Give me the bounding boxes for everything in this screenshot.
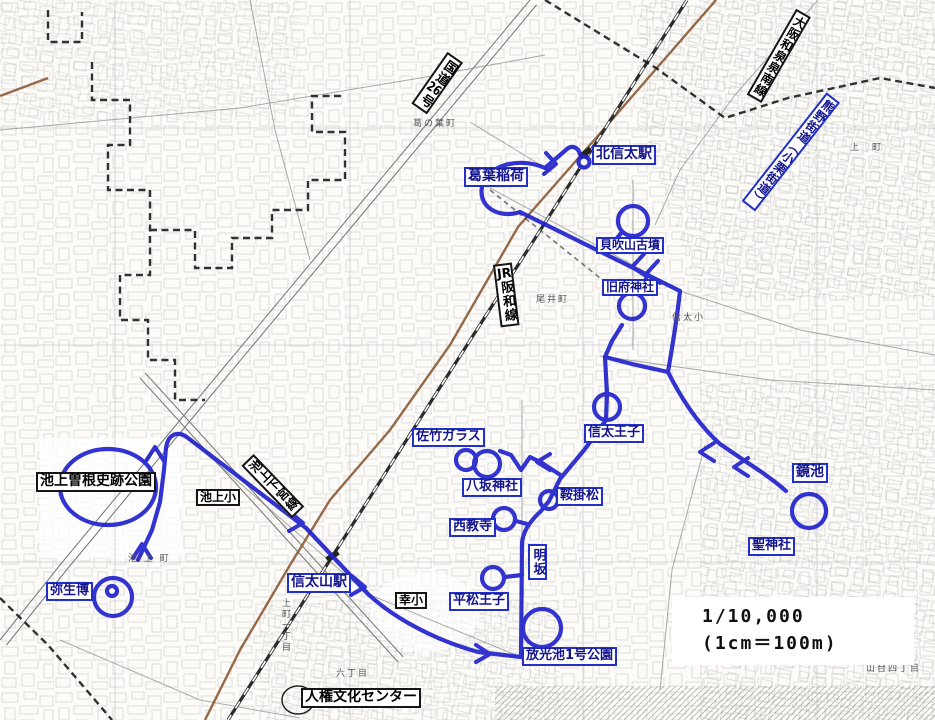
walking-map: 北信太駅葛葉稲荷貝吹山古墳旧府神社信太王子佐竹ガラス八坂神社西教寺鞍掛松鏡池聖神… [0,0,935,720]
shinoda-sho-area-text: 信太小 [672,310,705,323]
yayoi-haku-label: 弥生博 [46,582,93,601]
oicho-area-text: 尾井町 [536,292,569,305]
satake-glass-label: 佐竹ガラス [412,428,485,447]
kurakake-matsu-label: 鞍掛松 [556,487,603,506]
ikegami-elementary-label: 池上小 [196,489,240,506]
kokudo-26-label: 国道26号 [411,52,462,114]
kyufu-jinja-label: 旧府神社 [602,279,658,296]
akesaka-label: 明坂 [528,544,547,580]
rokuchome-area-text: 六丁目 [336,666,369,679]
saikyoji-label: 西教寺 [449,518,496,537]
scale-legend: (1cm＝100m) [672,630,914,657]
uemachi-1chome-area-text: 上町一丁目 [279,598,292,653]
ikegami-sone-park-label: 池上曽根史跡公園 [36,472,156,492]
jr-hanwa-line-label: JR阪和線 [493,263,519,328]
hiramatsu-oji-label: 平松王子 [449,592,509,611]
hokoike-park-label: 放光池1号公園 [522,647,617,666]
shinoda-oji-label: 信太王子 [584,424,644,443]
uemachi-area-text: 上 町 [850,140,883,153]
kitashinoda-station-label: 北信太駅 [592,145,656,165]
kuzunohacho-area-text: 葛の葉町 [413,116,457,129]
saiwai-elementary-label: 幸小 [395,592,427,609]
kagami-ike-label: 鏡池 [792,463,828,483]
shinodayama-station-label: 信太山駅 [287,573,351,593]
kumano-kaido-label: 熊野街道（小栗街道） [742,92,841,211]
kaibukiyama-kofun-label: 貝吹山古墳 [596,237,664,254]
ikegami-shimomiya-line-label: 池上下宮線 [241,454,304,519]
scale-box: 1/10,000 (1cm＝100m) [672,597,914,665]
ikegamicho-area-text: 池 上 町 [128,551,171,564]
yasaka-jinja-label: 八坂神社 [462,478,522,497]
kuzunoha-inari-label: 葛葉稲荷 [464,167,528,187]
osaka-izumi-sennan-line-label: 大阪和泉泉南線 [747,9,812,103]
hijiri-jinja-label: 聖神社 [748,537,795,556]
scale-ratio: 1/10,000 [672,603,914,630]
jinken-bunka-center-label: 人権文化センター [301,688,421,708]
